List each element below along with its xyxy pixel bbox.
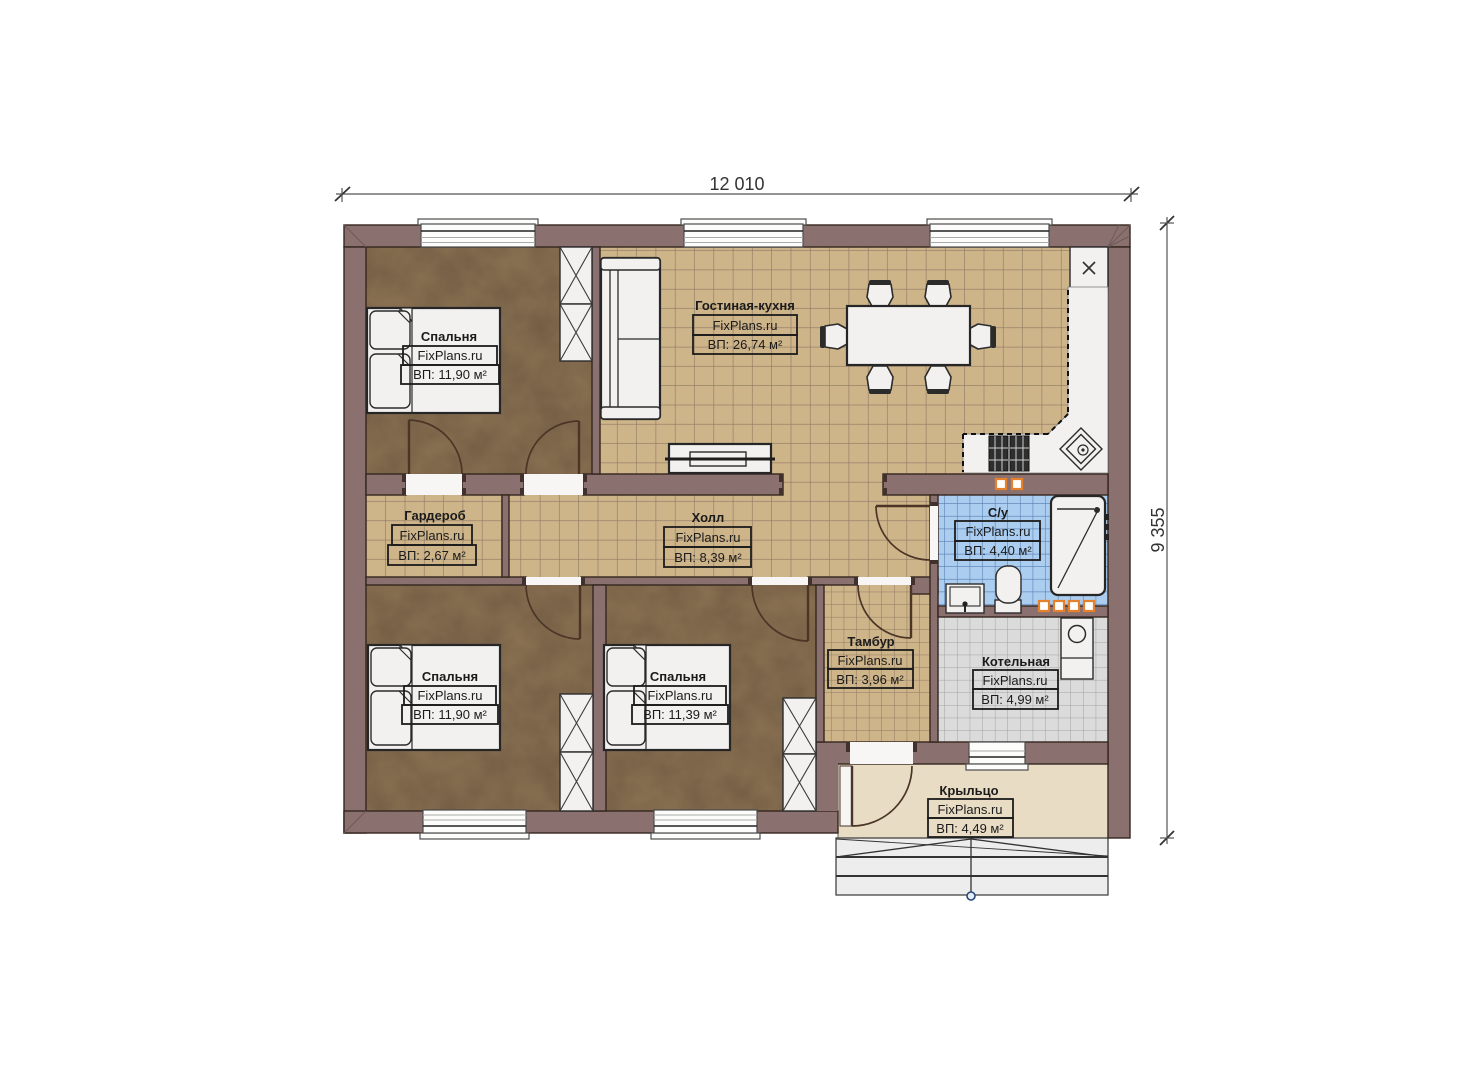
- svg-text:Спальня: Спальня: [422, 669, 478, 684]
- svg-text:FixPlans.ru: FixPlans.ru: [647, 688, 712, 703]
- svg-text:FixPlans.ru: FixPlans.ru: [965, 524, 1030, 539]
- svg-text:FixPlans.ru: FixPlans.ru: [399, 528, 464, 543]
- svg-text:ВП: 11,39 м²: ВП: 11,39 м²: [643, 707, 717, 722]
- svg-text:FixPlans.ru: FixPlans.ru: [675, 530, 740, 545]
- svg-text:FixPlans.ru: FixPlans.ru: [937, 802, 1002, 817]
- svg-text:ВП: 4,49 м²: ВП: 4,49 м²: [936, 821, 1004, 836]
- svg-text:Холл: Холл: [692, 510, 725, 525]
- svg-text:Спальня: Спальня: [650, 669, 706, 684]
- svg-text:Крыльцо: Крыльцо: [939, 783, 998, 798]
- svg-text:ВП: 26,74 м²: ВП: 26,74 м²: [708, 337, 783, 352]
- svg-text:FixPlans.ru: FixPlans.ru: [837, 653, 902, 668]
- svg-text:ВП: 2,67 м²: ВП: 2,67 м²: [398, 548, 466, 563]
- svg-text:12 010: 12 010: [709, 174, 764, 194]
- svg-text:Тамбур: Тамбур: [847, 634, 894, 649]
- svg-text:FixPlans.ru: FixPlans.ru: [417, 348, 482, 363]
- svg-text:FixPlans.ru: FixPlans.ru: [982, 673, 1047, 688]
- svg-text:С/у: С/у: [988, 505, 1009, 520]
- svg-text:ВП: 4,99 м²: ВП: 4,99 м²: [981, 692, 1049, 707]
- svg-text:ВП: 11,90 м²: ВП: 11,90 м²: [413, 707, 487, 722]
- svg-text:FixPlans.ru: FixPlans.ru: [417, 688, 482, 703]
- svg-text:ВП: 4,40 м²: ВП: 4,40 м²: [964, 543, 1032, 558]
- svg-text:ВП: 8,39 м²: ВП: 8,39 м²: [674, 550, 742, 565]
- svg-text:Спальня: Спальня: [421, 329, 477, 344]
- svg-text:9 355: 9 355: [1148, 507, 1168, 552]
- svg-text:Гостиная-кухня: Гостиная-кухня: [695, 298, 795, 313]
- svg-text:ВП: 3,96 м²: ВП: 3,96 м²: [836, 672, 904, 687]
- svg-text:Котельная: Котельная: [982, 654, 1050, 669]
- svg-text:FixPlans.ru: FixPlans.ru: [712, 318, 777, 333]
- svg-text:Гардероб: Гардероб: [404, 508, 465, 523]
- svg-text:ВП: 11,90 м²: ВП: 11,90 м²: [413, 367, 487, 382]
